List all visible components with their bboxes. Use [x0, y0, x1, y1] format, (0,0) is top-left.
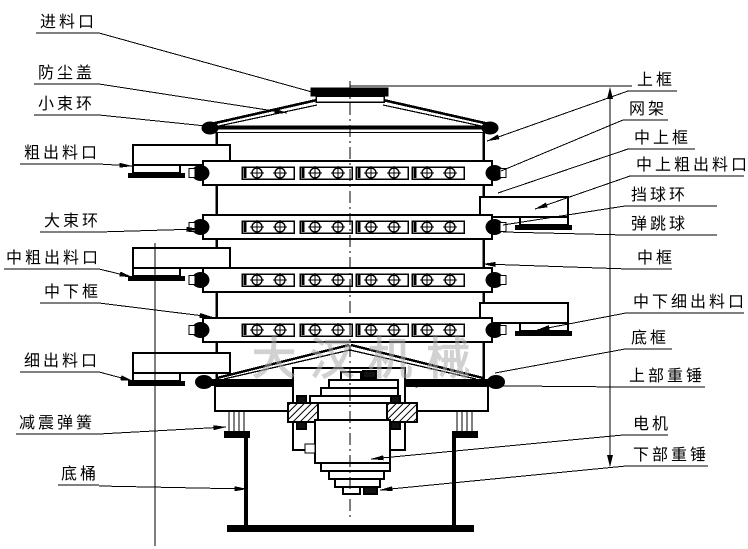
- label-text: 进料口: [40, 12, 97, 31]
- label-text: 中下细出料口: [633, 292, 747, 311]
- leader-line: [371, 435, 623, 459]
- motor-body: [315, 420, 390, 463]
- label-fine-outlet: 细出料口: [20, 351, 133, 381]
- label-text: 防尘盖: [38, 63, 95, 82]
- leader-line: [99, 229, 199, 232]
- label-middle-frame: 中框: [483, 248, 675, 269]
- label-text: 下部重锤: [633, 445, 709, 464]
- motor-assembly: [288, 368, 417, 494]
- leader-line: [495, 349, 625, 373]
- label-lower-weight: 下部重锤: [380, 445, 709, 490]
- label-text: 中上框: [634, 128, 691, 147]
- label-text: 减震弹簧: [19, 413, 95, 432]
- label-bottom-barrel: 底桶: [58, 464, 247, 489]
- screen-band: [189, 268, 506, 292]
- leader-line: [483, 264, 628, 269]
- label-text: 中上粗出料口: [636, 155, 748, 174]
- leader-line: [99, 372, 133, 381]
- label-text: 大束环: [44, 211, 101, 230]
- label-text: 上框: [637, 70, 675, 89]
- label-text: 网架: [629, 99, 667, 118]
- lower-weight-stack: [321, 463, 390, 494]
- label-text: 底桶: [61, 464, 99, 483]
- leader-line: [99, 427, 226, 434]
- leader-line: [503, 232, 625, 235]
- screen-clamp-bands: [189, 161, 506, 342]
- label-coarse-outlet: 粗出料口: [20, 143, 132, 166]
- leader-line: [99, 486, 247, 489]
- screen-band: [189, 215, 506, 239]
- label-large-clamp-ring: 大束环: [40, 211, 199, 232]
- label-text: 底框: [631, 328, 669, 347]
- spring: [224, 411, 250, 438]
- label-text: 电机: [633, 414, 671, 433]
- leader-line: [498, 149, 628, 193]
- label-mid-lower-frame: 中下框: [40, 282, 212, 317]
- label-text: 中粗出料口: [6, 248, 101, 267]
- leader-line: [535, 176, 630, 209]
- label-small-clamp-ring: 小束环: [34, 94, 206, 126]
- watermark-text: 大汉机械: [252, 334, 484, 385]
- leader-line: [99, 269, 132, 277]
- leader-line: [99, 33, 312, 92]
- label-damping-spring: 减震弹簧: [16, 413, 226, 434]
- label-text: 小束环: [38, 94, 95, 113]
- leader-line: [380, 466, 626, 490]
- screen-band: [189, 161, 506, 185]
- leader-line: [99, 84, 287, 113]
- label-mid-coarse-outlet: 中粗出料口: [4, 248, 132, 277]
- leader-line: [99, 164, 132, 166]
- diagram-page: 大汉机械 进料口防尘盖小束环粗出料口大束环中粗出料口中下框细出料口减震弹簧底桶上…: [0, 0, 748, 549]
- label-text: 上部重锤: [629, 366, 705, 385]
- label-text: 挡球环: [631, 185, 688, 204]
- label-text: 细出料口: [24, 351, 100, 370]
- leader-line: [487, 91, 628, 141]
- label-text: 粗出料口: [24, 143, 100, 162]
- label-text: 中框: [637, 248, 675, 267]
- leader-line: [501, 120, 623, 171]
- label-text: 中下框: [44, 282, 101, 301]
- label-text: 弹跳球: [631, 214, 688, 233]
- leader-line: [99, 115, 206, 126]
- spring: [452, 411, 478, 438]
- vibrating-sieve-diagram: 大汉机械 进料口防尘盖小束环粗出料口大束环中粗出料口中下框细出料口减震弹簧底桶上…: [0, 0, 748, 549]
